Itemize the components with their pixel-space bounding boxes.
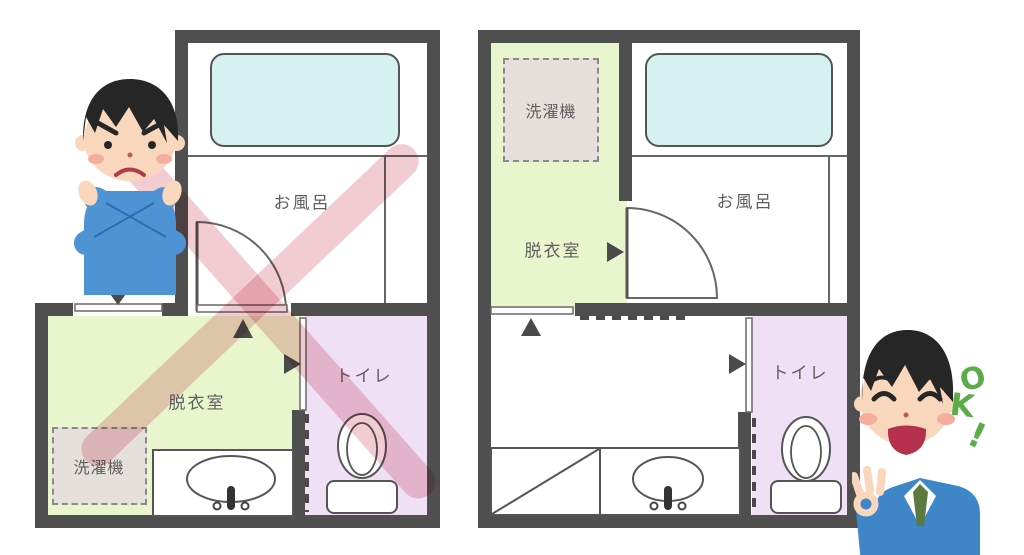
arrow-up-icon bbox=[521, 318, 541, 336]
good-toilet-room-area bbox=[752, 316, 847, 515]
good-bathtub bbox=[645, 53, 833, 147]
illustration-canvas: お風呂 脱衣室 トイレ 洗濯機 bbox=[0, 0, 1024, 555]
wall-segment bbox=[478, 515, 860, 528]
good-counter-diagonal bbox=[492, 449, 599, 514]
good-toilet-label: トイレ bbox=[772, 359, 829, 384]
good-dressing-label: 脱衣室 bbox=[525, 237, 582, 262]
good-faucet bbox=[664, 486, 672, 510]
good-bath-partition-line bbox=[828, 155, 830, 303]
good-faucet-knob bbox=[651, 503, 658, 510]
wall-segment bbox=[478, 30, 860, 43]
wall-segment bbox=[619, 43, 632, 201]
ok-caption: O K ! bbox=[948, 362, 1008, 458]
good-sink-basin bbox=[633, 457, 703, 501]
wall-segment bbox=[575, 303, 847, 316]
good-vanity-counter bbox=[491, 448, 740, 515]
good-bath-label: お風呂 bbox=[717, 188, 774, 213]
arrow-right-icon bbox=[729, 354, 746, 374]
good-faucet-knob bbox=[679, 503, 686, 510]
good-bath-door-arc bbox=[627, 208, 717, 298]
good-tub-platform-line bbox=[632, 155, 847, 157]
wall-segment bbox=[738, 412, 751, 515]
wall-segment bbox=[478, 30, 491, 528]
floor-plan-good: お風呂 脱衣室 トイレ 洗濯機 bbox=[0, 0, 1024, 555]
wall-segment bbox=[847, 30, 860, 528]
good-washer-label: 洗濯機 bbox=[525, 98, 576, 122]
